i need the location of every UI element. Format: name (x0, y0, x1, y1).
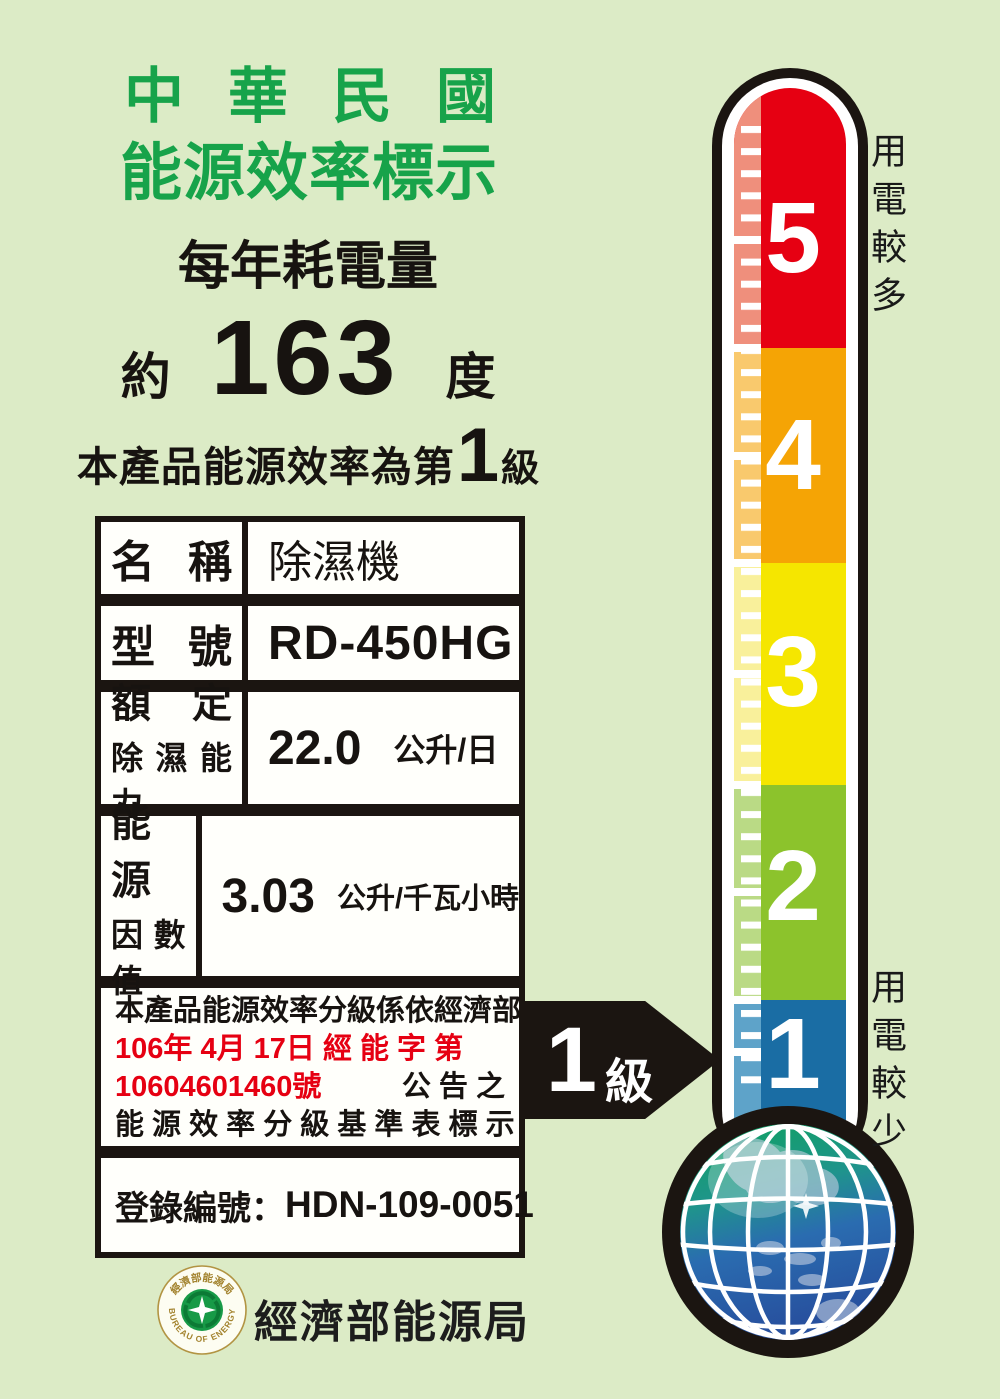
bureau-of-energy-seal-icon: 經濟部能源局 BUREAU OF ENERGY (156, 1264, 248, 1356)
spec-label-ef-line2: 因數值 (111, 910, 186, 1002)
grade-sentence: 本產品能源效率為第 1 級 (0, 412, 616, 499)
energy-factor-value: 3.03 (222, 869, 315, 924)
registration-number: HDN-109-0051 (285, 1184, 534, 1226)
consumption-unit: 度 (445, 337, 495, 409)
statement-line3-red: 10604601460號 (115, 1068, 321, 1106)
spec-row-energy-factor: 能 源 因數值 3.03 公升/千瓦小時 (95, 810, 525, 982)
spec-label-model-text: 型 號 (111, 611, 232, 675)
scale-number-1: 1 (765, 998, 821, 1110)
scale-number-3: 3 (765, 616, 821, 728)
agency-name: 經濟部能源局 (254, 1286, 530, 1350)
energy-factor-unit: 公升/千瓦小時 (337, 875, 519, 917)
statement-line3: 10604601460號 公 告 之 (115, 1068, 505, 1106)
energy-efficiency-label: 5 4 3 2 1 (0, 0, 1000, 1399)
statement-line1: 本產品能源效率分級係依經濟部 (115, 992, 505, 1030)
grade-arrow-unit: 級 (605, 1042, 653, 1112)
annual-consumption-heading: 每年耗電量 (0, 224, 616, 299)
scale-number-5: 5 (765, 182, 821, 294)
consumption-value: 163 (211, 298, 400, 419)
product-name-value: 除濕機 (268, 526, 400, 590)
grade-sentence-prefix: 本產品能源效率為第 (77, 433, 455, 493)
grade-sentence-suffix: 級 (501, 437, 539, 492)
annual-consumption-line: 約 163 度 (0, 298, 616, 419)
statement-line4: 能 源 效 率 分 級 基 準 表 標 示 (115, 1106, 505, 1144)
minor-ticks (741, 126, 761, 1098)
capacity-value: 22.0 (268, 721, 361, 776)
consumption-prefix: 約 (121, 337, 171, 409)
model-number-value: RD-450HG (268, 616, 513, 671)
statement-line3-black: 公 告 之 (402, 1068, 505, 1106)
spec-row-name: 名 稱 除濕機 (95, 516, 525, 600)
statement-box: 本產品能源效率分級係依經濟部 106年 4月 17日 經 能 字 第 10604… (95, 982, 525, 1152)
statement-line2: 106年 4月 17日 經 能 字 第 (115, 1030, 505, 1068)
grade-sentence-grade: 1 (457, 412, 499, 499)
registration-box: 登錄編號： HDN-109-0051 (95, 1152, 525, 1258)
spec-label-model: 型 號 (101, 606, 248, 680)
scale-number-4: 4 (765, 399, 821, 511)
grade-arrow-number: 1 (546, 1014, 597, 1106)
label-title-line2: 能源效率標示 (120, 122, 498, 212)
spec-label-energy-factor: 能 源 因數值 (101, 816, 202, 976)
spec-table: 名 稱 除濕機 型 號 RD-450HG 額 定 除濕能力 22.0 公升/日 … (95, 516, 525, 1258)
label-less-power: 用電較少 (860, 968, 912, 1160)
registration-label: 登錄編號： (115, 1181, 285, 1230)
scale-number-2: 2 (765, 830, 821, 942)
spec-label-capacity: 額 定 除濕能力 (101, 692, 248, 804)
spec-label-capacity-line1: 額 定 (111, 671, 232, 729)
capacity-unit: 公升/日 (393, 725, 498, 771)
spec-label-ef-line1: 能 源 (111, 790, 186, 906)
spec-label-name-text: 名 稱 (111, 526, 232, 590)
label-more-power: 用電較多 (860, 132, 912, 324)
spec-label-name: 名 稱 (101, 522, 248, 594)
